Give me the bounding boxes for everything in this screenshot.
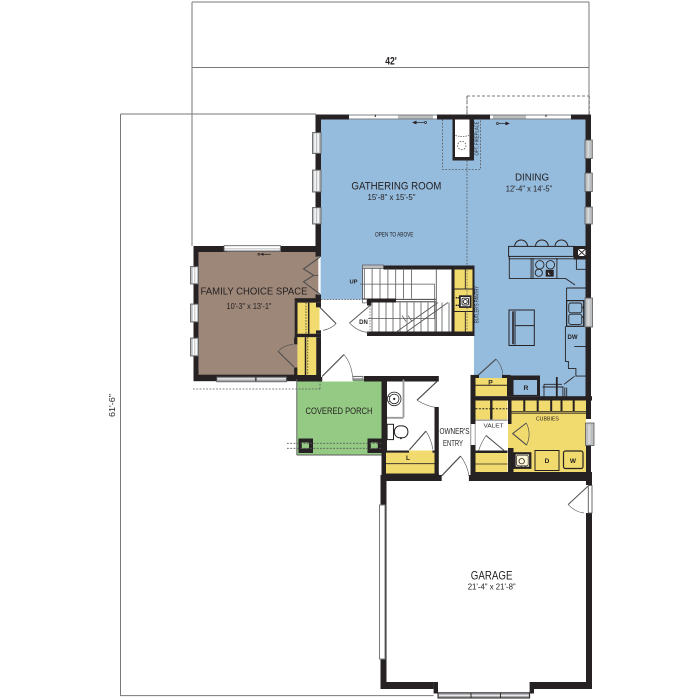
svg-text:UP: UP	[349, 280, 357, 286]
svg-text:GARAGE: GARAGE	[471, 569, 513, 583]
svg-text:15'-8" x 15'-5": 15'-8" x 15'-5"	[368, 192, 416, 202]
svg-text:R: R	[524, 385, 529, 392]
svg-text:61'-6": 61'-6"	[107, 394, 117, 417]
svg-text:DINING: DINING	[515, 172, 549, 184]
svg-text:OPT. FIREPLACE: OPT. FIREPLACE	[475, 121, 481, 156]
svg-text:FAMILY CHOICE SPACE: FAMILY CHOICE SPACE	[201, 287, 308, 298]
svg-text:42': 42'	[385, 56, 397, 68]
svg-text:12'-4" x 14'-5": 12'-4" x 14'-5"	[506, 184, 553, 194]
svg-text:W: W	[570, 458, 577, 465]
svg-text:D: D	[545, 458, 550, 465]
svg-text:P: P	[488, 379, 493, 386]
svg-text:CUBBIES: CUBBIES	[536, 416, 559, 422]
svg-text:DW: DW	[568, 335, 578, 341]
svg-text:OWNER'S: OWNER'S	[440, 426, 470, 436]
svg-text:L: L	[406, 455, 410, 462]
svg-text:GATHERING ROOM: GATHERING ROOM	[351, 181, 441, 193]
svg-text:VALET: VALET	[484, 423, 505, 429]
svg-text:DN: DN	[359, 320, 368, 326]
svg-text:COVERED PORCH: COVERED PORCH	[306, 406, 373, 416]
svg-text:BUTLER'S PANTRY: BUTLER'S PANTRY	[475, 285, 481, 323]
svg-text:ENTRY: ENTRY	[443, 438, 463, 448]
svg-text:OPEN TO ABOVE: OPEN TO ABOVE	[375, 232, 414, 239]
svg-text:10'-3" x 13'-1": 10'-3" x 13'-1"	[227, 301, 272, 311]
svg-text:21'-4" x 21'-8": 21'-4" x 21'-8"	[468, 582, 516, 592]
